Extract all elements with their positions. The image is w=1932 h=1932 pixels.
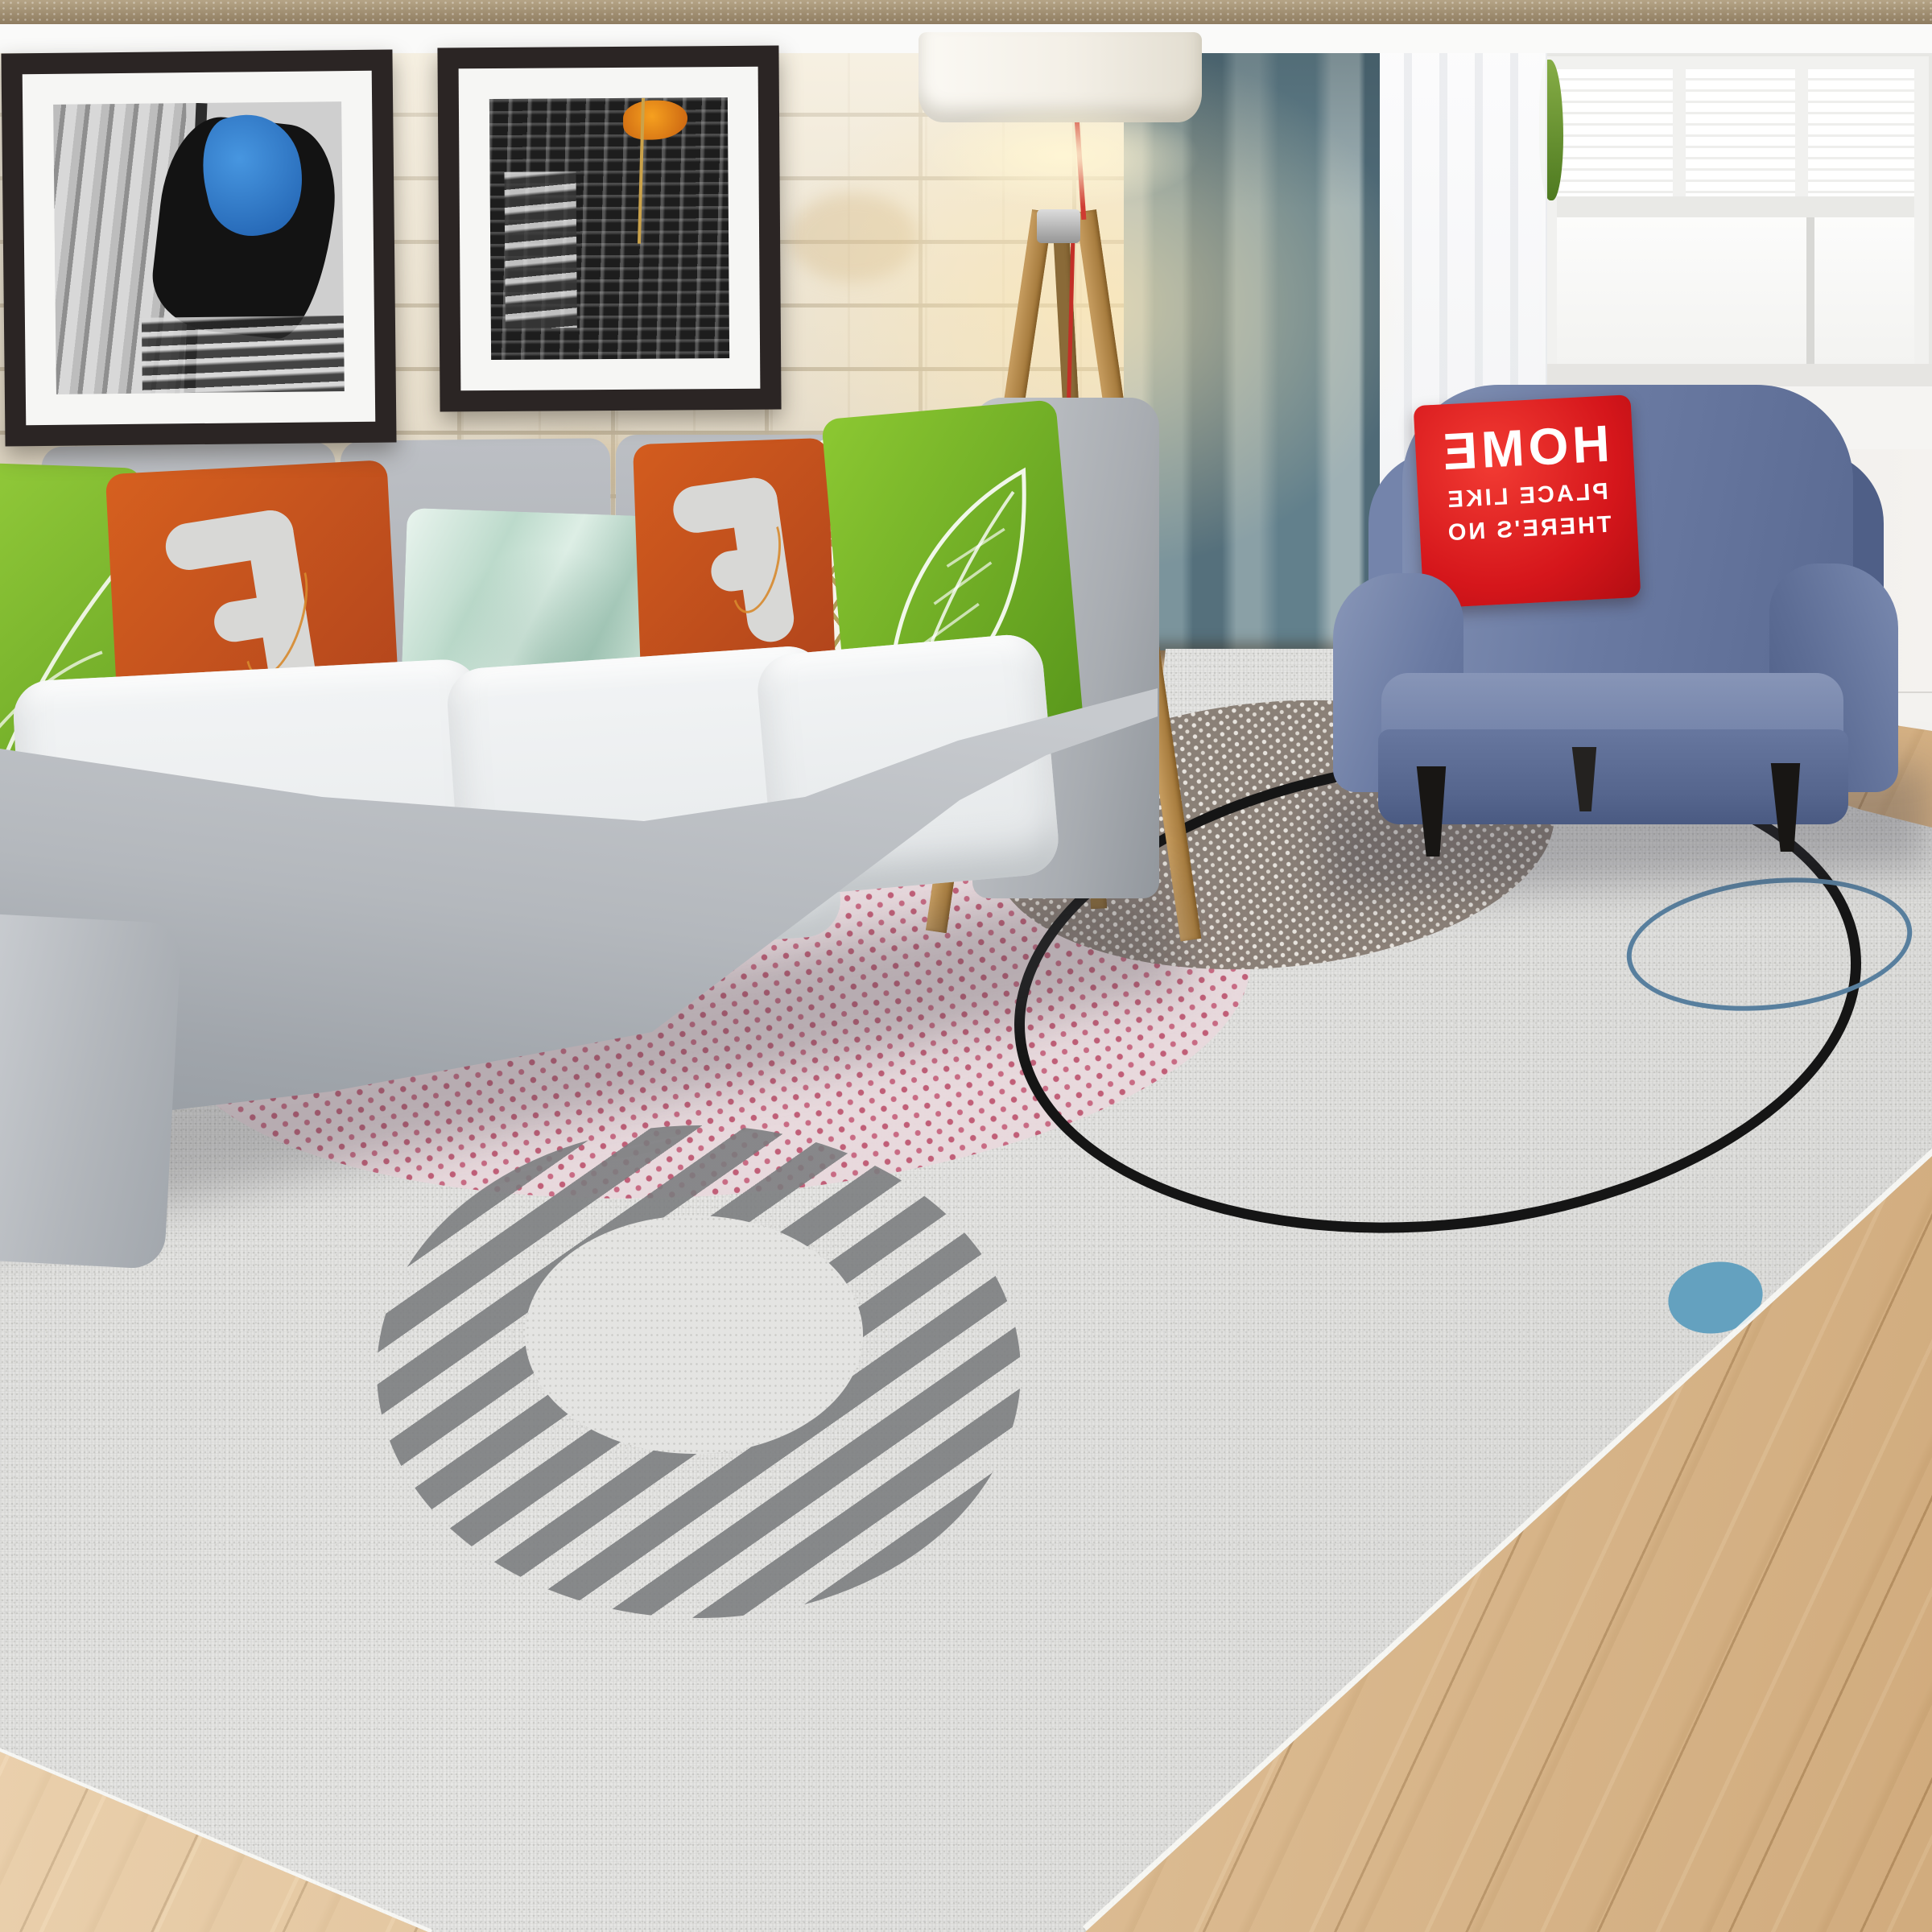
window-mullion — [1673, 69, 1686, 196]
top-border-strip — [0, 0, 1932, 24]
pillow-text-place-like: PLACE LIKE — [1445, 479, 1609, 514]
sofa-left-arm — [0, 912, 182, 1269]
mirrored-text-block: HOME PLACE LIKE THERE'S NO — [1414, 394, 1641, 609]
window-rail — [1557, 196, 1914, 217]
red-home-pillow: HOME PLACE LIKE THERE'S NO — [1414, 394, 1641, 609]
lamp-collar — [1037, 209, 1080, 243]
framed-water-photo — [437, 46, 781, 412]
photo-water — [142, 316, 345, 394]
window-mullion — [1795, 69, 1808, 196]
framed-gondola-photo — [1, 49, 396, 446]
photo-gondola — [53, 101, 345, 394]
window-pane-bottom — [1557, 217, 1914, 364]
pillow-text-home: HOME — [1438, 417, 1611, 480]
pillow-text-theres-no: THERE'S NO — [1445, 512, 1612, 547]
window-mullion — [1806, 217, 1814, 364]
window-sill — [1539, 364, 1932, 386]
photo-white-water — [504, 171, 576, 328]
photo-water-reflections — [489, 97, 729, 360]
rug-striped-donut-hole — [525, 1216, 863, 1454]
living-room-scene: HOME PLACE LIKE THERE'S NO — [0, 0, 1932, 1932]
lamp-light — [926, 103, 1199, 208]
window-pane-top — [1557, 69, 1914, 196]
